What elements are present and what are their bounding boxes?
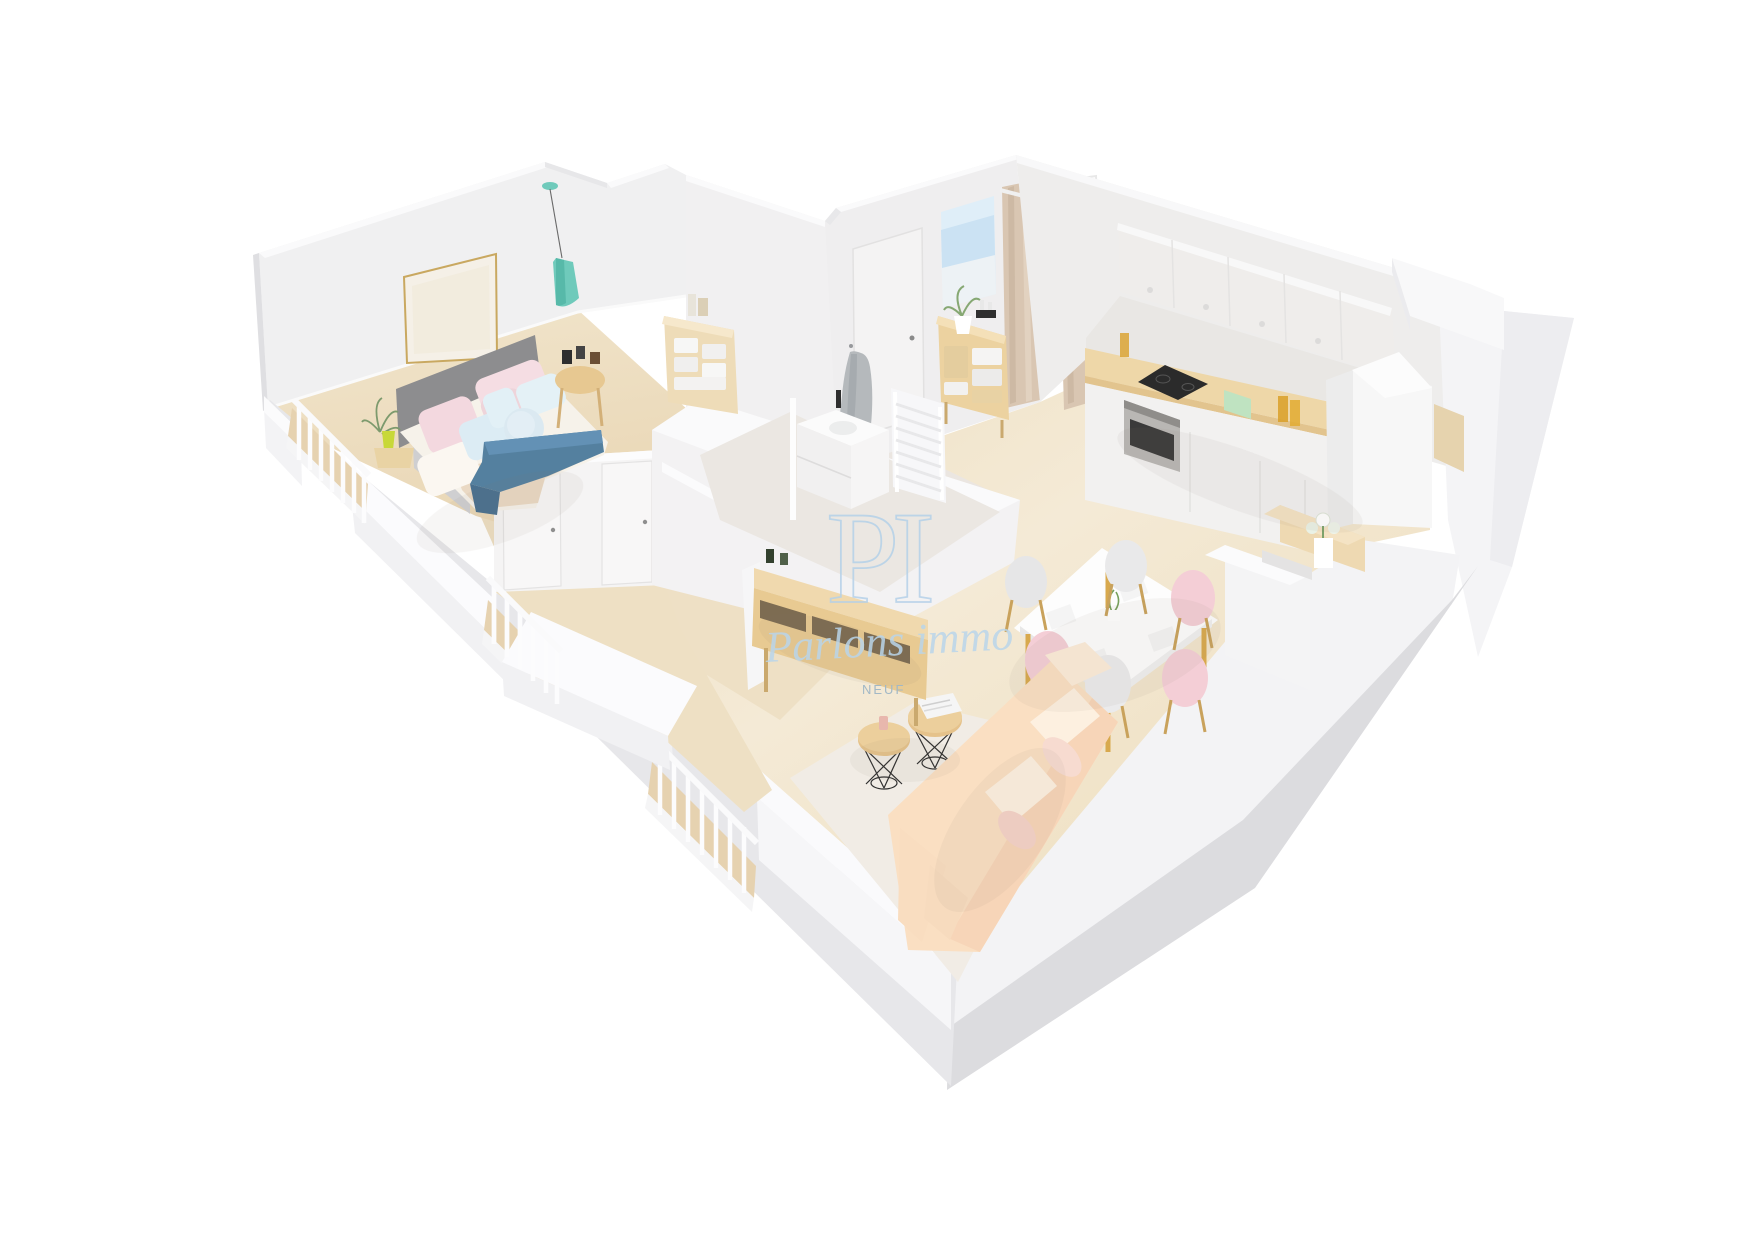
- svg-text:NEUF: NEUF: [862, 682, 905, 697]
- svg-text:PI: PI: [826, 484, 931, 631]
